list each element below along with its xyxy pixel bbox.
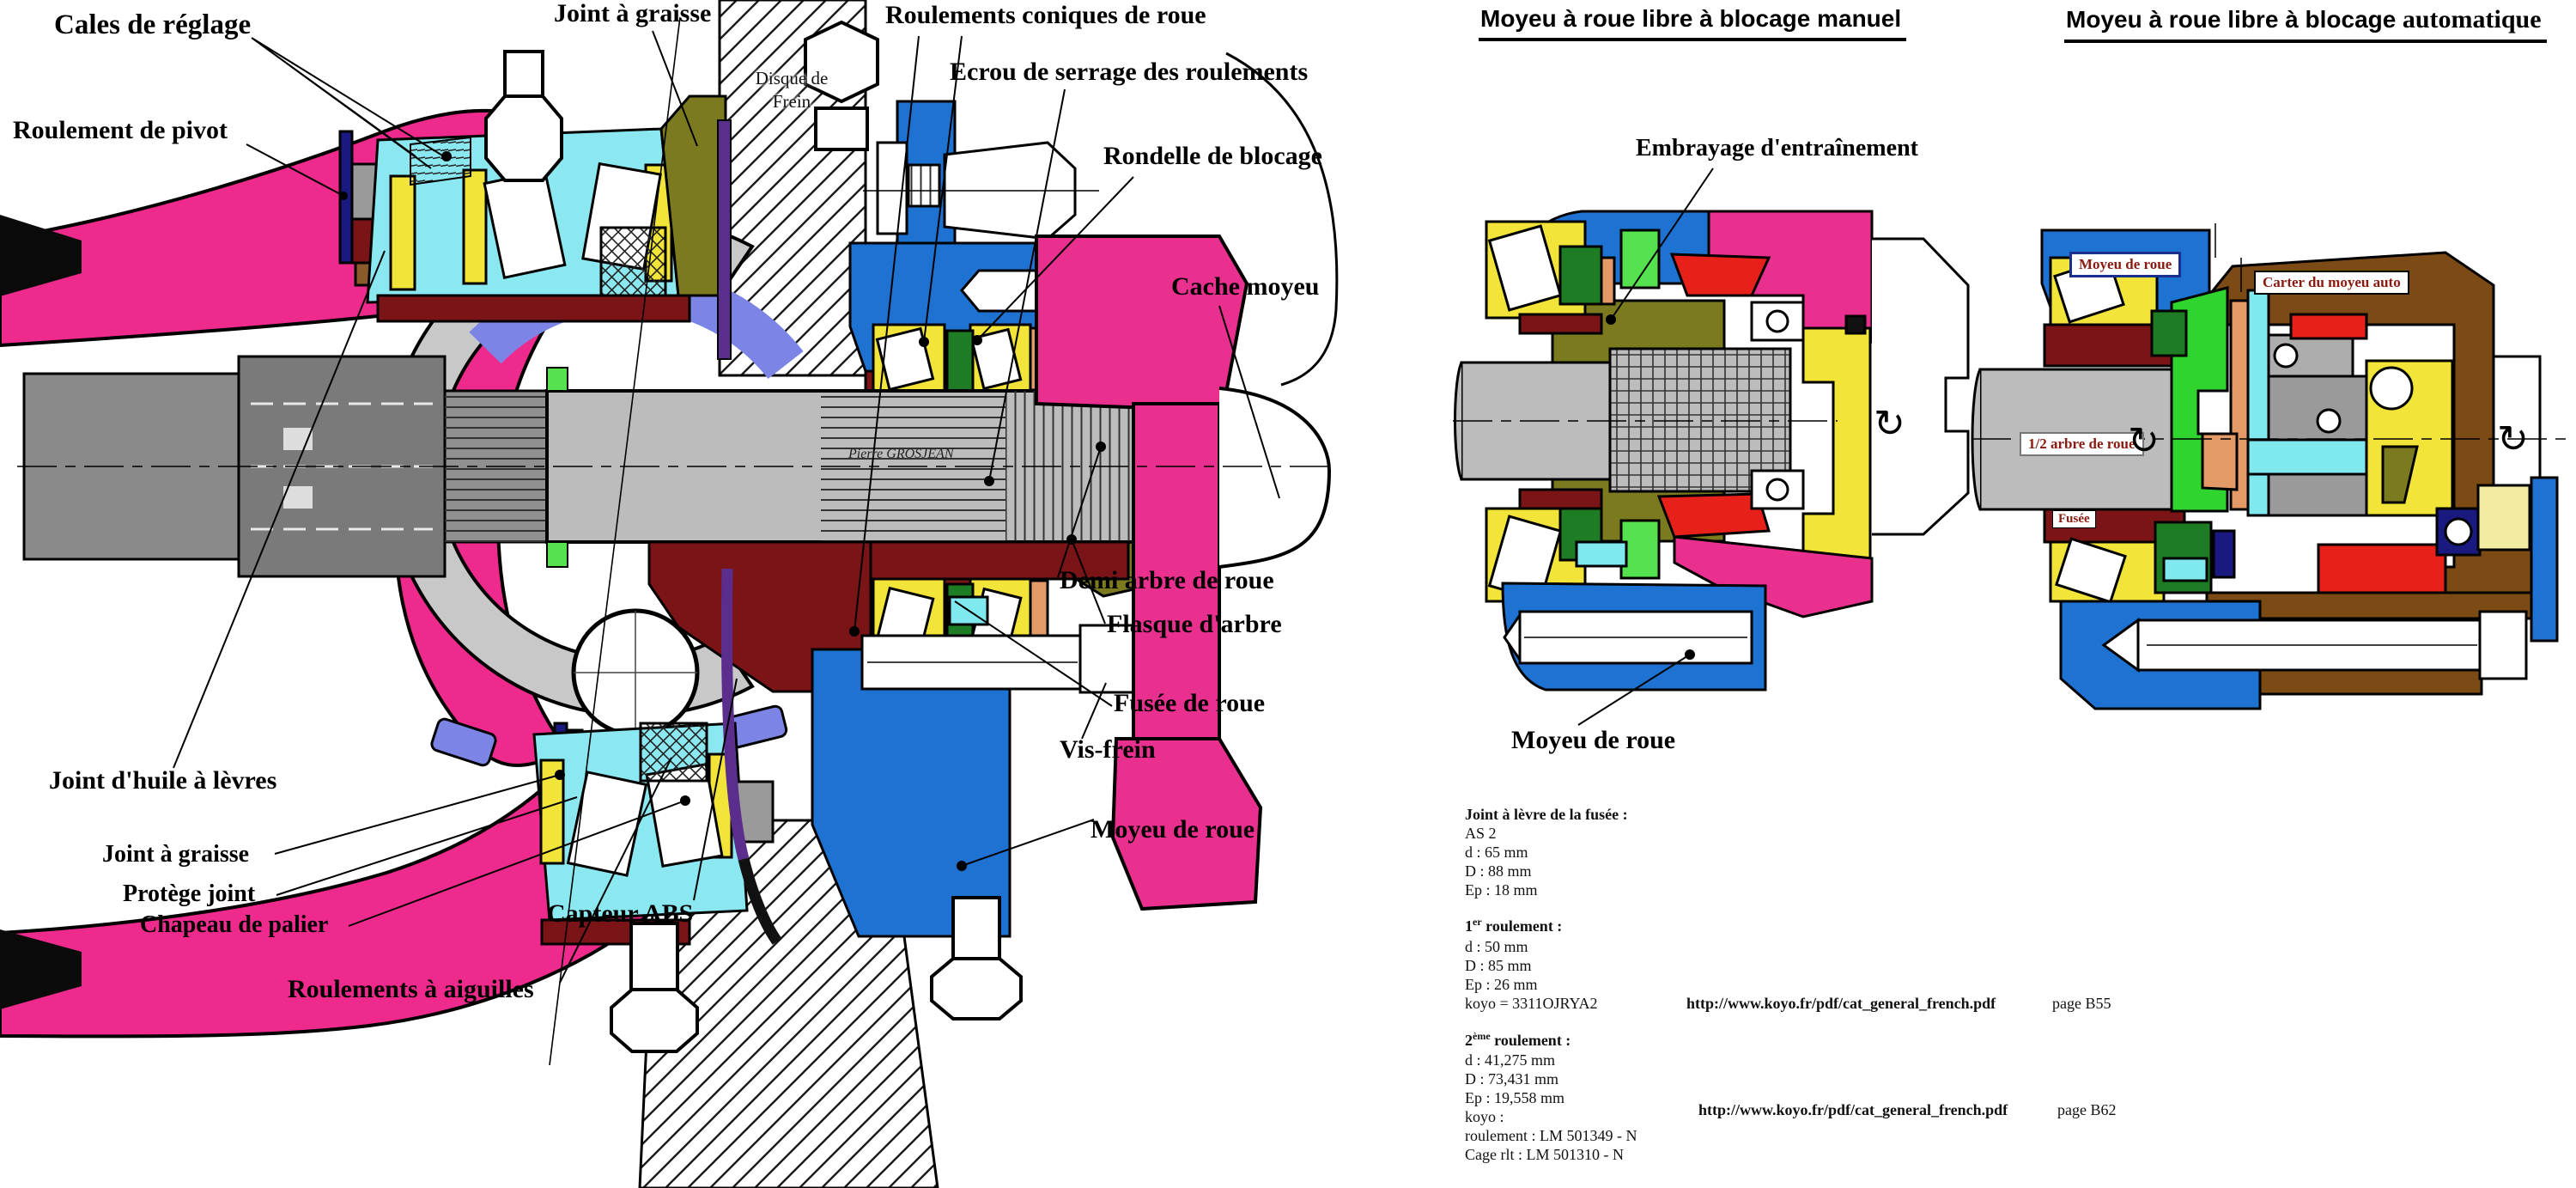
spec-line: d : 65 mm: [1465, 844, 2169, 862]
auto-bottom-stud: [2104, 612, 2526, 679]
auto-blue-right-bar: [2531, 478, 2557, 641]
rotation-arrow-icon: ↻: [1874, 402, 1905, 446]
auto-red-bottom: [2318, 545, 2445, 593]
spec-heading-roulement-1: 1er roulement :: [1465, 916, 2169, 935]
label-cache-moyeu: Cache moyeu: [1171, 273, 1319, 301]
spec-line: D : 73,431 mm: [1465, 1070, 2169, 1088]
partbox-carter-moyeu-auto: Carter du moyeu auto: [2254, 271, 2409, 295]
label-moyeu-de-roue-left: Moyeu de roue: [1091, 816, 1255, 844]
manual-yellow-c: [1803, 328, 1870, 567]
label-chapeau-palier: Chapeau de palier: [140, 912, 328, 937]
spec-sup: er: [1473, 916, 1482, 928]
hub-cap-shape: [1219, 388, 1329, 567]
manual-hub-drawing: [1453, 168, 1968, 725]
auto-red-top: [2291, 314, 2366, 338]
spec-sup: ème: [1473, 1030, 1491, 1042]
label-flasque-arbre: Flasque d'arbre: [1107, 611, 1282, 638]
label-cales-de-reglage: Cales de réglage: [54, 10, 251, 40]
label-ecrou-serrage: Ecrou de serrage des roulements: [950, 58, 1308, 86]
partbox-moyeu-de-roue: Moyeu de roue: [2069, 252, 2181, 277]
spec-heading-joint-levre: Joint à lèvre de la fusée :: [1465, 806, 2169, 824]
manual-red-top: [1672, 254, 1769, 295]
partbox-fusee: Fusée: [2052, 510, 2096, 528]
author-signature: Pierre GROSJEAN: [848, 447, 953, 462]
label-roulements-coniques: Roulements coniques de roue: [885, 2, 1206, 29]
rotation-arrow-icon: ↻: [2497, 417, 2529, 461]
label-fusee-de-roue: Fusée de roue: [1114, 690, 1265, 717]
spec-line: roulement : LM 501349 - N: [1465, 1127, 2169, 1145]
spec-line: Ep : 26 mm: [1465, 976, 2169, 994]
spec-koyo-ref: koyo :: [1465, 1108, 1504, 1125]
disque-line1: Disque de: [756, 68, 829, 88]
auto-hub-drawing: [1971, 223, 2569, 709]
label-joint-huile-levres: Joint d'huile à lèvres: [49, 767, 276, 795]
spec-num: 2: [1465, 1032, 1473, 1049]
rotation-arrow-icon: ↻: [2128, 419, 2160, 463]
spec-heading-roulement-2: 2ème roulement :: [1465, 1030, 2169, 1050]
diagram-canvas: [0, 0, 2576, 1188]
label-embrayage: Embrayage d'entraînement: [1636, 136, 1918, 161]
wheel-rim-curve: [1226, 53, 1337, 385]
spec-line: d : 50 mm: [1465, 938, 2169, 956]
label-roulements-aiguilles: Roulements à aiguilles: [288, 976, 534, 1003]
partbox-demi-arbre: 1/2 arbre de roue: [2020, 432, 2144, 456]
technical-diagram-page: Cales de réglage Joint à graisse Rouleme…: [0, 0, 2576, 1188]
label-capteur-abs: Capteur ABS: [547, 900, 693, 928]
spec-line: Ep : 18 mm: [1465, 881, 2169, 899]
spec-rest: roulement :: [1491, 1032, 1571, 1049]
label-moyeu-de-roue-manual: Moyeu de roue: [1511, 727, 1675, 754]
manual-shaft: [1455, 349, 1791, 491]
koyo-url-link[interactable]: http://www.koyo.fr/pdf/cat_general_frenc…: [1698, 1101, 2008, 1119]
label-vis-frein: Vis-frein: [1060, 736, 1156, 764]
label-rondelle-blocage: Rondelle de blocage: [1103, 143, 1322, 170]
label-demi-arbre: Demi arbre de roue: [1060, 567, 1274, 594]
koyo-url-link[interactable]: http://www.koyo.fr/pdf/cat_general_frenc…: [1686, 995, 1996, 1013]
spec-line: AS 2: [1465, 825, 2169, 843]
manual-drum-outline: [1872, 239, 1968, 534]
heading-auto-hub: Moyeu à roue libre à blocage automatique: [2064, 5, 2547, 43]
spec-page-ref: page B55: [2052, 995, 2111, 1013]
label-roulement-pivot: Roulement de pivot: [13, 117, 228, 144]
auto-pale-yellow: [2478, 485, 2530, 550]
spec-line: D : 85 mm: [1465, 957, 2169, 975]
heading-auto-main: Moyeu à roue libre à blocage: [2066, 6, 2396, 33]
spec-num: 1: [1465, 917, 1473, 935]
heading-manual-hub: Moyeu à roue libre à blocage manuel: [1479, 5, 1906, 41]
spec-koyo-ref: koyo = 3311OJRYA2: [1465, 995, 1598, 1012]
spec-line-koyo1: koyo = 3311OJRYA2 http://www.koyo.fr/pdf…: [1465, 995, 2169, 1013]
spec-line: D : 88 mm: [1465, 862, 2169, 880]
spec-rest: roulement :: [1482, 917, 1563, 935]
label-joint-a-graisse-top: Joint à graisse: [554, 0, 711, 27]
label-disque-de-frein: Disque de Frein: [723, 67, 860, 113]
heading-auto-suffix: automatique: [2396, 5, 2541, 34]
label-protege-joint: Protège joint: [123, 881, 255, 906]
spec-line: d : 41,275 mm: [1465, 1051, 2169, 1069]
label-joint-a-graisse-bottom: Joint à graisse: [102, 842, 249, 867]
spec-line: Cage rlt : LM 501310 - N: [1465, 1146, 2169, 1164]
spec-page-ref: page B62: [2057, 1101, 2116, 1119]
disque-line2: Frein: [773, 91, 811, 112]
spec-line-koyo2: koyo : http://www.koyo.fr/pdf/cat_genera…: [1465, 1108, 2169, 1126]
